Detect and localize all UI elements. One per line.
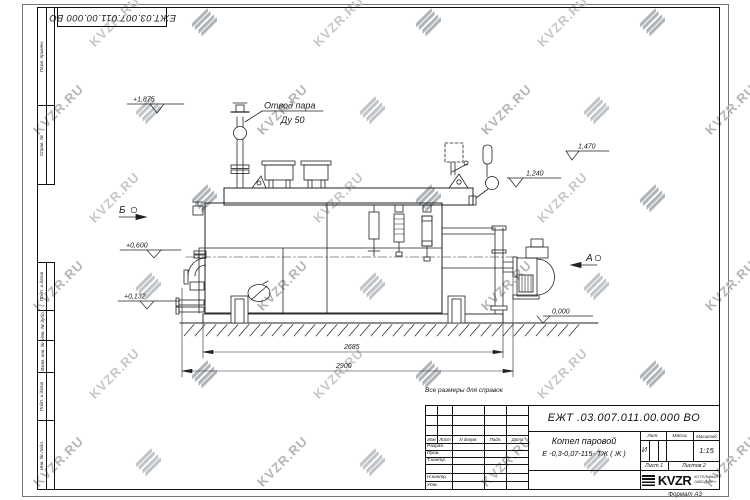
line xyxy=(217,325,227,337)
elevation-1240: 1,240 xyxy=(507,171,561,188)
circle xyxy=(595,255,601,261)
span: Взам. инв. № xyxy=(40,342,45,371)
cell-perv-primen: Перв. примен. xyxy=(37,7,47,105)
callout-steam-outlet: Отвод пара Ду 50 xyxy=(245,101,323,126)
line xyxy=(251,286,267,300)
span: Перв. примен. xyxy=(40,40,45,71)
steam-outlet-valve xyxy=(231,103,249,188)
line xyxy=(481,325,491,337)
text: 1,470 xyxy=(578,144,596,151)
top-stamp-number: ЕЖТ.03.007.011.00.000 ВО xyxy=(49,12,176,23)
line xyxy=(316,325,326,337)
polyline xyxy=(566,151,579,160)
col-podp: Подп. xyxy=(485,436,506,443)
rect xyxy=(394,214,404,242)
rect xyxy=(513,257,517,277)
line xyxy=(382,325,392,337)
line xyxy=(195,325,205,337)
path xyxy=(188,258,206,276)
line xyxy=(184,325,194,337)
line xyxy=(327,325,337,337)
rect xyxy=(423,205,431,212)
polygon xyxy=(203,350,213,354)
rect xyxy=(369,212,379,239)
rect xyxy=(304,165,328,180)
lit-label: Лит. xyxy=(640,432,666,440)
line xyxy=(525,325,535,337)
cell-podp-data-2: Подп. и дата xyxy=(37,372,47,420)
elevation-0132: +0,132 xyxy=(118,294,179,310)
circle xyxy=(131,207,137,213)
rect xyxy=(308,180,312,188)
text: 1,240 xyxy=(526,171,544,178)
line xyxy=(305,325,315,337)
polyline xyxy=(150,104,164,113)
kvzr-logo-icon xyxy=(642,475,655,486)
dimensions: 2685 2900 xyxy=(182,278,513,377)
col-izm: Изм xyxy=(426,436,437,443)
product-name: Котел паровой xyxy=(528,434,640,447)
rect xyxy=(224,188,473,205)
line xyxy=(476,189,488,198)
span: Подп. и дата xyxy=(40,381,45,410)
line xyxy=(338,325,348,337)
elevation-0000: 0,000 xyxy=(537,309,593,324)
cell-sprav-no: Справ. № xyxy=(37,105,47,185)
cell-inv-podl: Инв. № подл. xyxy=(37,420,47,490)
text: +1,875 xyxy=(133,97,155,104)
sheets-total: Листов 2 xyxy=(668,461,720,470)
rect xyxy=(301,161,331,165)
rect xyxy=(231,170,249,174)
rect xyxy=(190,282,204,290)
rect xyxy=(321,180,325,188)
line xyxy=(470,325,480,337)
polyline xyxy=(537,316,550,323)
polygon xyxy=(182,369,192,373)
rect xyxy=(526,247,548,258)
rect xyxy=(269,180,273,188)
row-nkontr: Н.контр. xyxy=(427,473,452,481)
row-prov: Пров. xyxy=(427,450,452,457)
rect xyxy=(286,180,290,188)
rect xyxy=(193,206,203,215)
water-level-gauges xyxy=(368,205,432,261)
rect xyxy=(422,216,432,246)
sheet-number: Лист 1 xyxy=(640,461,668,470)
rect xyxy=(424,257,430,261)
rect xyxy=(231,165,249,169)
text: 2685 xyxy=(343,344,360,351)
line xyxy=(547,325,557,337)
row-tkontr: Т.контр. xyxy=(427,457,452,464)
elevation-0600: +0,600 xyxy=(120,243,181,259)
rect xyxy=(422,241,432,246)
line xyxy=(437,325,447,337)
left-fittings xyxy=(176,202,206,314)
elevation-1470: 1,470 xyxy=(566,144,609,161)
text: 2900 xyxy=(335,363,352,370)
rect xyxy=(491,306,507,310)
doc-number: ЕЖТ .03.007.011.00.000 ВО xyxy=(528,405,720,431)
row-utv: Утв. xyxy=(427,481,452,489)
text: А xyxy=(585,253,593,264)
line xyxy=(404,325,414,337)
logo-subtext: КОТЕЛЬНЫЙ ЗАВОД.РУ xyxy=(694,475,718,484)
rect xyxy=(184,270,188,284)
line xyxy=(426,325,436,337)
drawing-sheet: KVZR.RUKVZR.RUKVZR.RUKVZR.RUKVZR.RUKVZR.… xyxy=(0,0,750,500)
top-stamp: ЕЖТ.03.007.011.00.000 ВО xyxy=(57,7,167,27)
line xyxy=(228,325,238,337)
line xyxy=(261,325,271,337)
line xyxy=(536,325,546,337)
mass-label: Масса xyxy=(666,432,693,440)
text: 0,000 xyxy=(552,309,570,316)
rect xyxy=(452,299,461,323)
line xyxy=(492,325,502,337)
rect xyxy=(483,145,492,164)
manhole-oval xyxy=(248,281,270,302)
col-data: Дата xyxy=(507,436,528,443)
polygon xyxy=(493,350,503,354)
line xyxy=(393,325,403,337)
path xyxy=(195,265,206,276)
feed-pump xyxy=(513,239,555,299)
dimension-2685: 2685 xyxy=(203,344,503,354)
line xyxy=(452,164,467,172)
rect xyxy=(395,205,403,212)
line xyxy=(250,325,260,337)
line xyxy=(569,325,579,337)
line xyxy=(272,325,282,337)
polyline xyxy=(509,178,523,187)
top-hatch-left xyxy=(262,161,295,188)
cell-inv-dubl: Инв. № дубл. xyxy=(37,310,47,340)
text: +0,132 xyxy=(124,294,146,301)
span: Подп. и дата xyxy=(40,271,45,300)
line xyxy=(558,325,568,337)
elevation-1875: +1,875 xyxy=(127,97,184,114)
logo-text: KVZR xyxy=(658,473,691,488)
line xyxy=(206,325,216,337)
view-arrow-a: А xyxy=(571,253,601,268)
span: Справ. № xyxy=(40,134,45,155)
span: Инв. № дубл. xyxy=(40,311,45,340)
circle xyxy=(457,180,461,184)
row-razrab: Разраб. xyxy=(427,443,452,450)
g xyxy=(184,325,579,337)
callout-line2: Ду 50 xyxy=(280,115,304,125)
product-designation: Е -0,3-0,07-115- ТЖ ( Ж ) xyxy=(528,448,640,459)
polygon xyxy=(503,369,513,373)
line xyxy=(263,281,268,284)
scale-label: Масштаб xyxy=(693,432,720,440)
scale-value: 1:15 xyxy=(693,440,720,461)
rect xyxy=(422,216,432,221)
line xyxy=(371,325,381,337)
polyline xyxy=(140,301,154,309)
circle xyxy=(234,127,247,140)
rect xyxy=(179,300,204,305)
line xyxy=(459,325,469,337)
rect xyxy=(531,239,543,247)
line xyxy=(415,325,425,337)
line xyxy=(283,325,293,337)
line xyxy=(514,325,524,337)
view-arrow-b: Б xyxy=(119,205,146,220)
line xyxy=(239,325,249,337)
valve-bracket-left xyxy=(252,176,266,188)
rect xyxy=(179,307,204,312)
line xyxy=(360,325,370,337)
line xyxy=(349,325,359,337)
support-legs xyxy=(231,296,465,323)
polygon xyxy=(571,262,581,267)
cell-podp-data-1: Подп. и дата xyxy=(37,262,47,310)
rect xyxy=(445,143,463,162)
span: Инв. № подл. xyxy=(40,440,45,469)
format-label: Формат А3 xyxy=(650,491,720,498)
callout-line1: Отвод пара xyxy=(264,101,315,111)
path xyxy=(537,259,555,295)
rect xyxy=(236,105,244,112)
rect xyxy=(194,251,206,254)
span: ЗАВОД.РУ xyxy=(694,480,718,485)
polyline xyxy=(147,250,161,258)
col-list: Лист xyxy=(438,436,452,443)
text: +0,600 xyxy=(126,243,148,250)
dimension-2900: 2900 xyxy=(182,363,513,373)
top-hatch-right xyxy=(301,161,331,188)
ground xyxy=(180,323,598,336)
polygon xyxy=(136,214,146,219)
rect xyxy=(194,255,206,258)
elevation-marks: +1,875 1,470 1,240 +0,600 +0,132 xyxy=(118,97,609,324)
rect xyxy=(396,252,402,256)
cell-vzam-inv: Взам. инв. № xyxy=(37,340,47,372)
circle xyxy=(257,181,261,185)
line xyxy=(448,325,458,337)
col-ndoc: N докум. xyxy=(453,436,484,443)
reference-note: Все размеры для справок xyxy=(425,387,565,396)
line xyxy=(503,325,513,337)
rect xyxy=(492,250,506,253)
safety-valve-assembly xyxy=(445,143,468,188)
text: Б xyxy=(119,205,126,216)
company-logo: KVZR КОТЕЛЬНЫЙ ЗАВОД.РУ xyxy=(640,470,720,490)
pressure-gauge-siphon xyxy=(469,145,499,205)
circle xyxy=(486,177,499,190)
rect xyxy=(262,161,295,165)
rect xyxy=(235,299,244,323)
rect xyxy=(517,258,537,296)
line xyxy=(294,325,304,337)
lit-value: И xyxy=(640,440,649,461)
rect xyxy=(265,165,293,180)
